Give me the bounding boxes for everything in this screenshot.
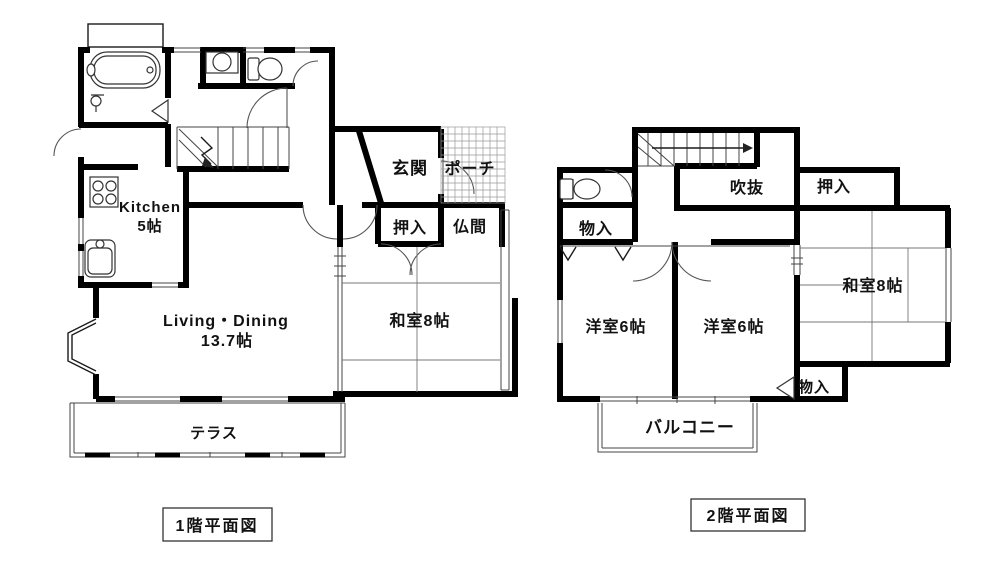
floor2-plan: 吹抜 押入 物入 洋室6帖 洋室6帖 和室8帖 物入 バルコニー — [557, 127, 951, 452]
label-mononyu-upper: 物入 — [579, 219, 613, 238]
washer-faucet — [91, 95, 104, 112]
floor2-walls — [557, 127, 950, 399]
bath-door-mark — [152, 100, 168, 122]
bay-window — [68, 319, 96, 375]
stairs-2f — [638, 133, 753, 166]
label-living-size: 13.7帖 — [201, 331, 253, 350]
mononyu-door-mark — [777, 377, 794, 399]
kitchen-sink — [85, 240, 115, 277]
sliding-door-track — [334, 247, 346, 392]
floor1-plan: Kitchen 5帖 Living・Dining 13.7帖 和室8帖 玄関 ポ… — [54, 24, 518, 457]
label-washitsu-2f: 和室8帖 — [843, 276, 904, 295]
caption-floor1-text: 1階平面図 — [176, 517, 259, 535]
caption-floor1: 1階平面図 — [163, 508, 272, 541]
label-yoshitsu-left: 洋室6帖 — [586, 317, 647, 336]
floor-plan-image: Kitchen 5帖 Living・Dining 13.7帖 和室8帖 玄関 ポ… — [0, 0, 1000, 566]
closet-chevrons — [560, 247, 631, 260]
toilet-1f — [248, 58, 282, 80]
caption-floor2-text: 2階平面図 — [707, 507, 790, 525]
bath-window-bay — [88, 24, 163, 47]
caption-floor2: 2階平面図 — [691, 499, 805, 531]
stair-arrow-head-2f — [743, 143, 753, 153]
label-washitsu-1f: 和室8帖 — [390, 311, 451, 330]
label-oshiire-1f: 押入 — [393, 218, 427, 237]
label-living: Living・Dining — [163, 313, 289, 330]
stairs-1f — [177, 127, 289, 169]
label-kitchen: Kitchen — [119, 199, 181, 216]
label-mononyu-lower: 物入 — [798, 378, 830, 396]
label-yoshitsu-right: 洋室6帖 — [704, 317, 765, 336]
stove — [90, 177, 118, 207]
label-oshiire-2f: 押入 — [817, 177, 851, 196]
bathtub — [87, 52, 160, 88]
label-porch: ポーチ — [444, 159, 495, 178]
label-terrace: テラス — [190, 425, 238, 442]
label-balcony: バルコニー — [645, 418, 735, 437]
washbasin-1f — [206, 52, 238, 73]
label-kitchen-size: 5帖 — [137, 217, 162, 235]
label-butsuma: 仏間 — [453, 218, 487, 236]
floor1-windows — [79, 48, 310, 401]
label-genkan: 玄関 — [392, 158, 428, 178]
label-fukinuke: 吹抜 — [730, 178, 764, 197]
floor-plan-drawing: Kitchen 5帖 Living・Dining 13.7帖 和室8帖 玄関 ポ… — [0, 0, 1000, 566]
toilet-2f — [560, 179, 600, 199]
